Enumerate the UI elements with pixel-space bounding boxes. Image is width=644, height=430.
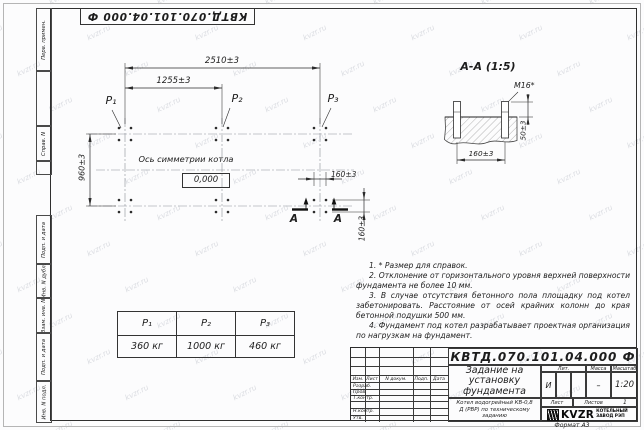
role-tkontr: Т.контр. xyxy=(353,396,393,401)
lit-label: Лит. xyxy=(541,365,586,372)
section-title: А-А (1:5) xyxy=(446,60,530,73)
load-header-p3: P₃ xyxy=(236,312,295,336)
load-value-p3: 460 кг xyxy=(236,336,295,358)
level-mark: 0,000 xyxy=(182,173,230,188)
note-3: 3. В случае отсутствия бетонного пола пл… xyxy=(356,291,630,321)
lit-value: И xyxy=(541,372,556,398)
section-letter-left: А xyxy=(286,213,302,225)
load-header-p2: P₂ xyxy=(177,312,236,336)
col-data: Дата xyxy=(430,377,448,382)
section-letter-right: А xyxy=(330,213,346,225)
logo-cell: KVZR КОТЕЛЬНЫЙ ЗАВОД РЭП xyxy=(541,407,638,422)
title-block-line xyxy=(351,357,448,358)
load-table-header-row: P₁ P₂ P₃ xyxy=(118,312,295,336)
dimension-arrows xyxy=(88,66,529,220)
title-block-line xyxy=(430,348,431,422)
section-view xyxy=(445,102,518,144)
load-value-p1: 360 кг xyxy=(118,336,177,358)
load-value-p2: 1000 кг xyxy=(177,336,236,358)
sheets-label: Листов xyxy=(584,400,603,406)
kvzr-emblem-icon xyxy=(547,409,559,421)
load-table-value-row: 360 кг 1000 кг 460 кг xyxy=(118,336,295,358)
dim-half: 1255±3 xyxy=(131,76,216,86)
dim-bolt-spacing-section: 160±3 xyxy=(458,149,504,158)
col-podp: Подп. xyxy=(413,377,430,382)
note-1: 1. * Размер для справок. xyxy=(356,261,630,271)
col-ndokum: N докум. xyxy=(379,377,413,382)
dim-depth: 960±3 xyxy=(78,146,87,190)
point-label-p2: P₂ xyxy=(226,92,248,105)
drawing-sheet: kvzr.rukvzr.rukvzr.rukvzr.rukvzr.rukvzr.… xyxy=(0,0,644,430)
role-nkontr: Н.контр. xyxy=(353,409,393,414)
title-block-line xyxy=(351,401,448,402)
product-description: Котел водогрейный КВ-0,8 Д (РВР) по техн… xyxy=(448,398,541,422)
scale-value: 1:20 xyxy=(611,372,638,398)
bolt-thread-label: M16* xyxy=(514,81,548,90)
symmetry-axis-label: Ось симметрии котла xyxy=(136,154,236,164)
plan-centerlines xyxy=(88,118,354,222)
col-izm: Изм. xyxy=(351,377,365,382)
note-4: 4. Фундамент под котел разрабатывает про… xyxy=(356,321,630,341)
format-label: Формат А3 xyxy=(527,422,617,429)
scale-label: Масштаб xyxy=(611,365,638,372)
dimension-lines xyxy=(90,68,528,222)
load-table: P₁ P₂ P₃ 360 кг 1000 кг 460 кг xyxy=(117,311,295,358)
role-razrab: Разраб. xyxy=(353,384,393,389)
sheets-value: 1 xyxy=(623,399,627,406)
lit-cell-3 xyxy=(571,372,586,398)
dim-bolt-vertical: 160±3 xyxy=(358,209,367,249)
dim-overall: 2510±3 xyxy=(176,56,268,66)
kvzr-logo: KVZR xyxy=(561,409,594,421)
dim-bolt-height: 50±3 xyxy=(519,114,528,148)
title-block-line xyxy=(413,348,414,422)
title-block-line xyxy=(351,366,448,367)
rotated-doc-number-box: КВТД.070.101.04.000 Ф xyxy=(80,8,255,25)
dim-bolt-horizontal: 160±3 xyxy=(331,170,371,179)
note-2: 2. Отклонение от горизонтального уровня … xyxy=(356,271,630,291)
point-label-p3: P₃ xyxy=(322,92,344,105)
col-list: Лист xyxy=(365,377,379,382)
mass-label: Масса xyxy=(586,365,611,372)
rotated-doc-number: КВТД.070.101.04.000 Ф xyxy=(87,10,247,22)
drawing-title: Задание на установку фундамента xyxy=(448,365,541,398)
lit-cell-2 xyxy=(556,372,571,398)
title-block: Изм. Лист N докум. Подп. Дата Разраб. Пр… xyxy=(350,347,637,421)
technical-notes: 1. * Размер для справок. 2. Отклонение о… xyxy=(356,261,630,341)
role-prov: Пров. xyxy=(353,390,393,395)
role-utv: Утв. xyxy=(353,416,393,421)
mass-value: – xyxy=(586,372,611,398)
load-header-p1: P₁ xyxy=(118,312,177,336)
doc-number: КВТД.070.101.04.000 Ф xyxy=(448,348,638,365)
company-name: КОТЕЛЬНЫЙ ЗАВОД РЭП xyxy=(596,410,628,420)
point-label-p1: P₁ xyxy=(100,94,122,107)
sheet-label: Лист xyxy=(541,398,573,407)
sheets-cell: Листов 1 xyxy=(573,398,638,407)
